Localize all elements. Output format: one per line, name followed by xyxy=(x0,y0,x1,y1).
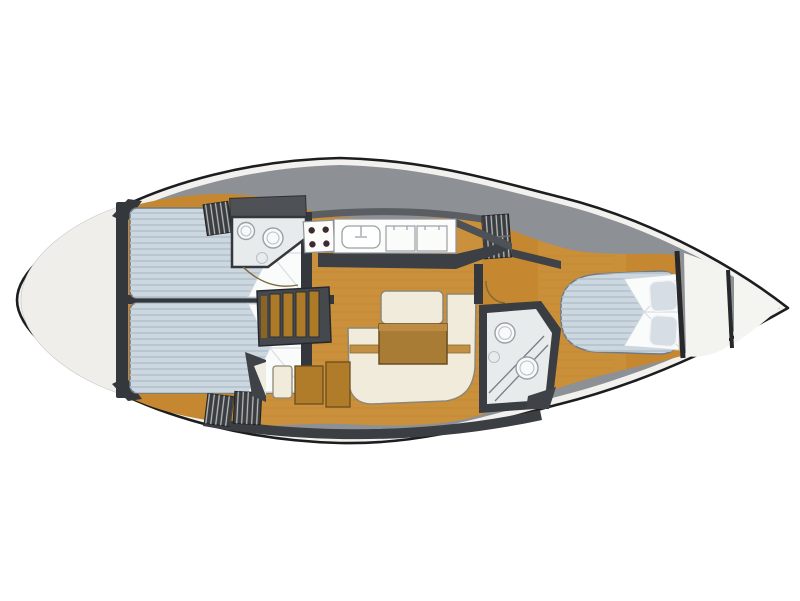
companionway-step-3 xyxy=(296,292,306,337)
cabinet-1 xyxy=(295,366,323,404)
nav-partition xyxy=(474,264,483,304)
salon-bench xyxy=(381,291,443,324)
galley-locker-1 xyxy=(386,226,415,251)
companionway-step-1 xyxy=(270,294,280,337)
deck-locker-aft-top xyxy=(203,201,232,235)
companionway-step-2 xyxy=(283,293,293,337)
forward-cabin xyxy=(561,271,679,354)
companionway-frame xyxy=(257,287,331,346)
deck-locker-aft-bottom-1 xyxy=(204,394,233,427)
companionway-side-rail xyxy=(261,296,267,338)
v-berth-pillow-top xyxy=(649,280,678,312)
toilet-port xyxy=(263,228,283,248)
companionway-step-4 xyxy=(309,291,319,337)
galley-locker-2 xyxy=(417,226,447,251)
boat-plan-canvas xyxy=(0,0,800,601)
head-starboard-floor xyxy=(487,309,552,404)
stove xyxy=(303,220,335,253)
head-starboard xyxy=(479,301,561,413)
washbasin-starboard xyxy=(516,357,538,379)
anchor-locker xyxy=(684,253,729,357)
cabinet-2 xyxy=(326,362,350,407)
washbasin-port xyxy=(238,223,255,240)
stern-platform xyxy=(21,204,127,396)
boat-layout-plan xyxy=(0,0,800,601)
toilet-starboard xyxy=(495,323,515,343)
small-seat xyxy=(273,366,292,398)
v-berth-pillow-bottom xyxy=(649,315,678,347)
salon-table-lip xyxy=(379,324,447,331)
